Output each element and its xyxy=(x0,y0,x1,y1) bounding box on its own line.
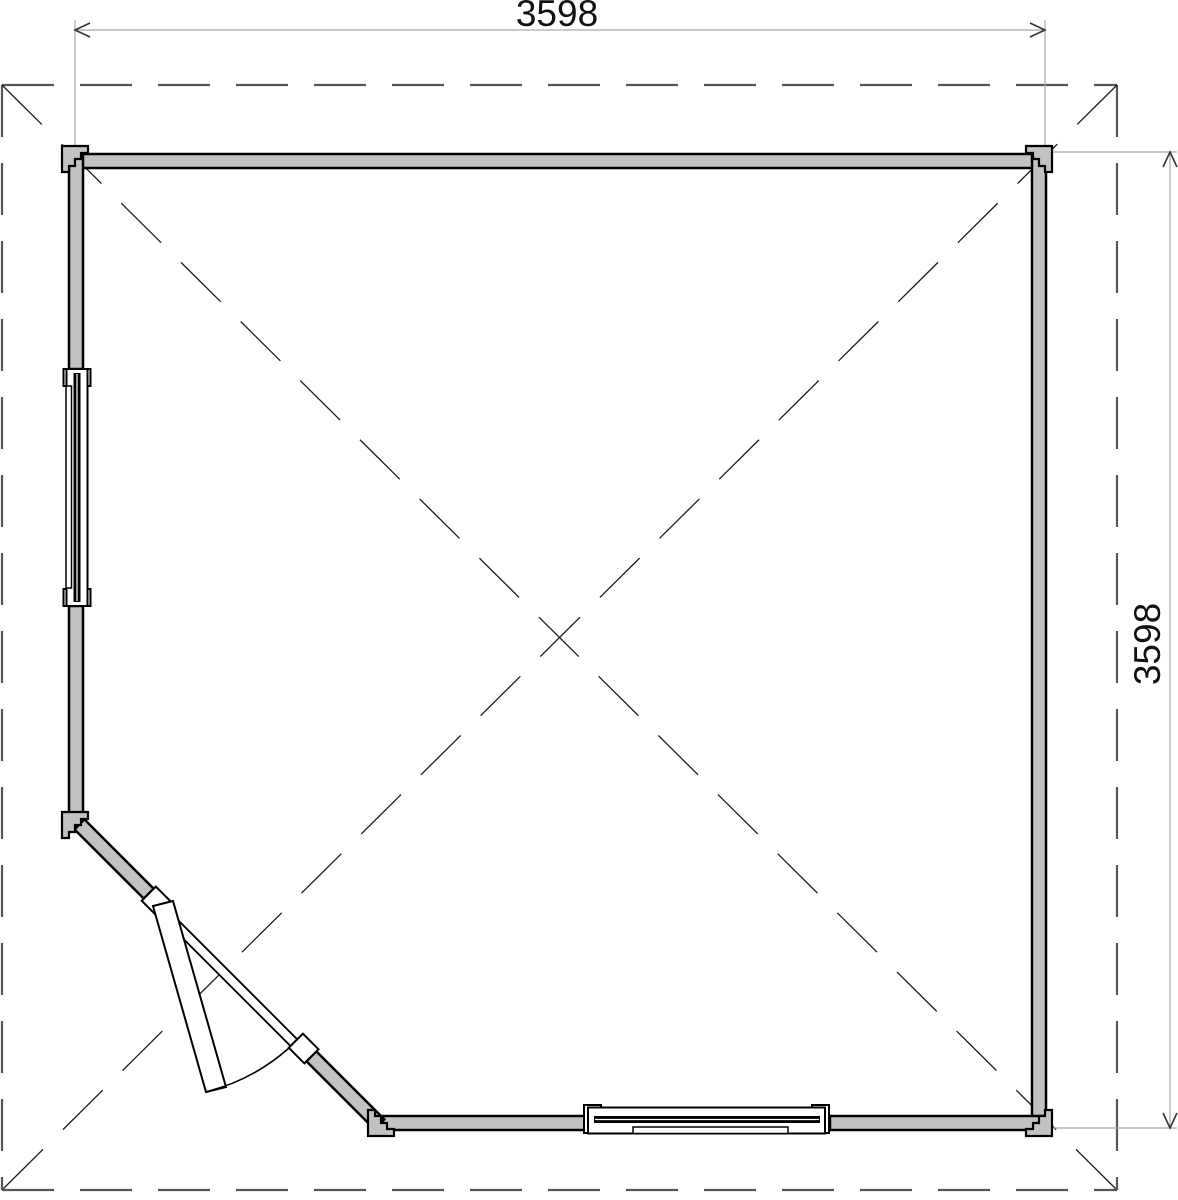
diagonal-line-ne-sw xyxy=(2,85,1117,1190)
door-leaf xyxy=(153,901,226,1092)
dimension-top: 3598 xyxy=(75,0,1045,150)
window-bottom-sash xyxy=(633,1127,788,1134)
floor-plan-drawing: 3598 3598 xyxy=(0,0,1178,1200)
wall-bottom-right xyxy=(830,1116,1046,1130)
diagonal-cross-lines xyxy=(2,85,1117,1190)
window-left-sash xyxy=(66,386,72,588)
corner-joints xyxy=(62,146,1052,1136)
floor-plan-canvas: 3598 3598 xyxy=(0,0,1178,1200)
door xyxy=(142,887,319,1092)
wall-left-upper xyxy=(69,154,83,369)
wall-bottom-left xyxy=(383,1116,585,1130)
dimension-right: 3598 xyxy=(1052,152,1177,1128)
wall-top xyxy=(69,154,1047,168)
wall-right xyxy=(1032,154,1046,1130)
window-bottom xyxy=(584,1105,829,1134)
right-dimension-label: 3598 xyxy=(1127,603,1168,685)
window-left xyxy=(64,369,91,606)
top-dimension-label: 3598 xyxy=(516,0,598,34)
wall-diagonal-upper xyxy=(75,819,154,898)
wall-left-lower xyxy=(69,606,83,825)
